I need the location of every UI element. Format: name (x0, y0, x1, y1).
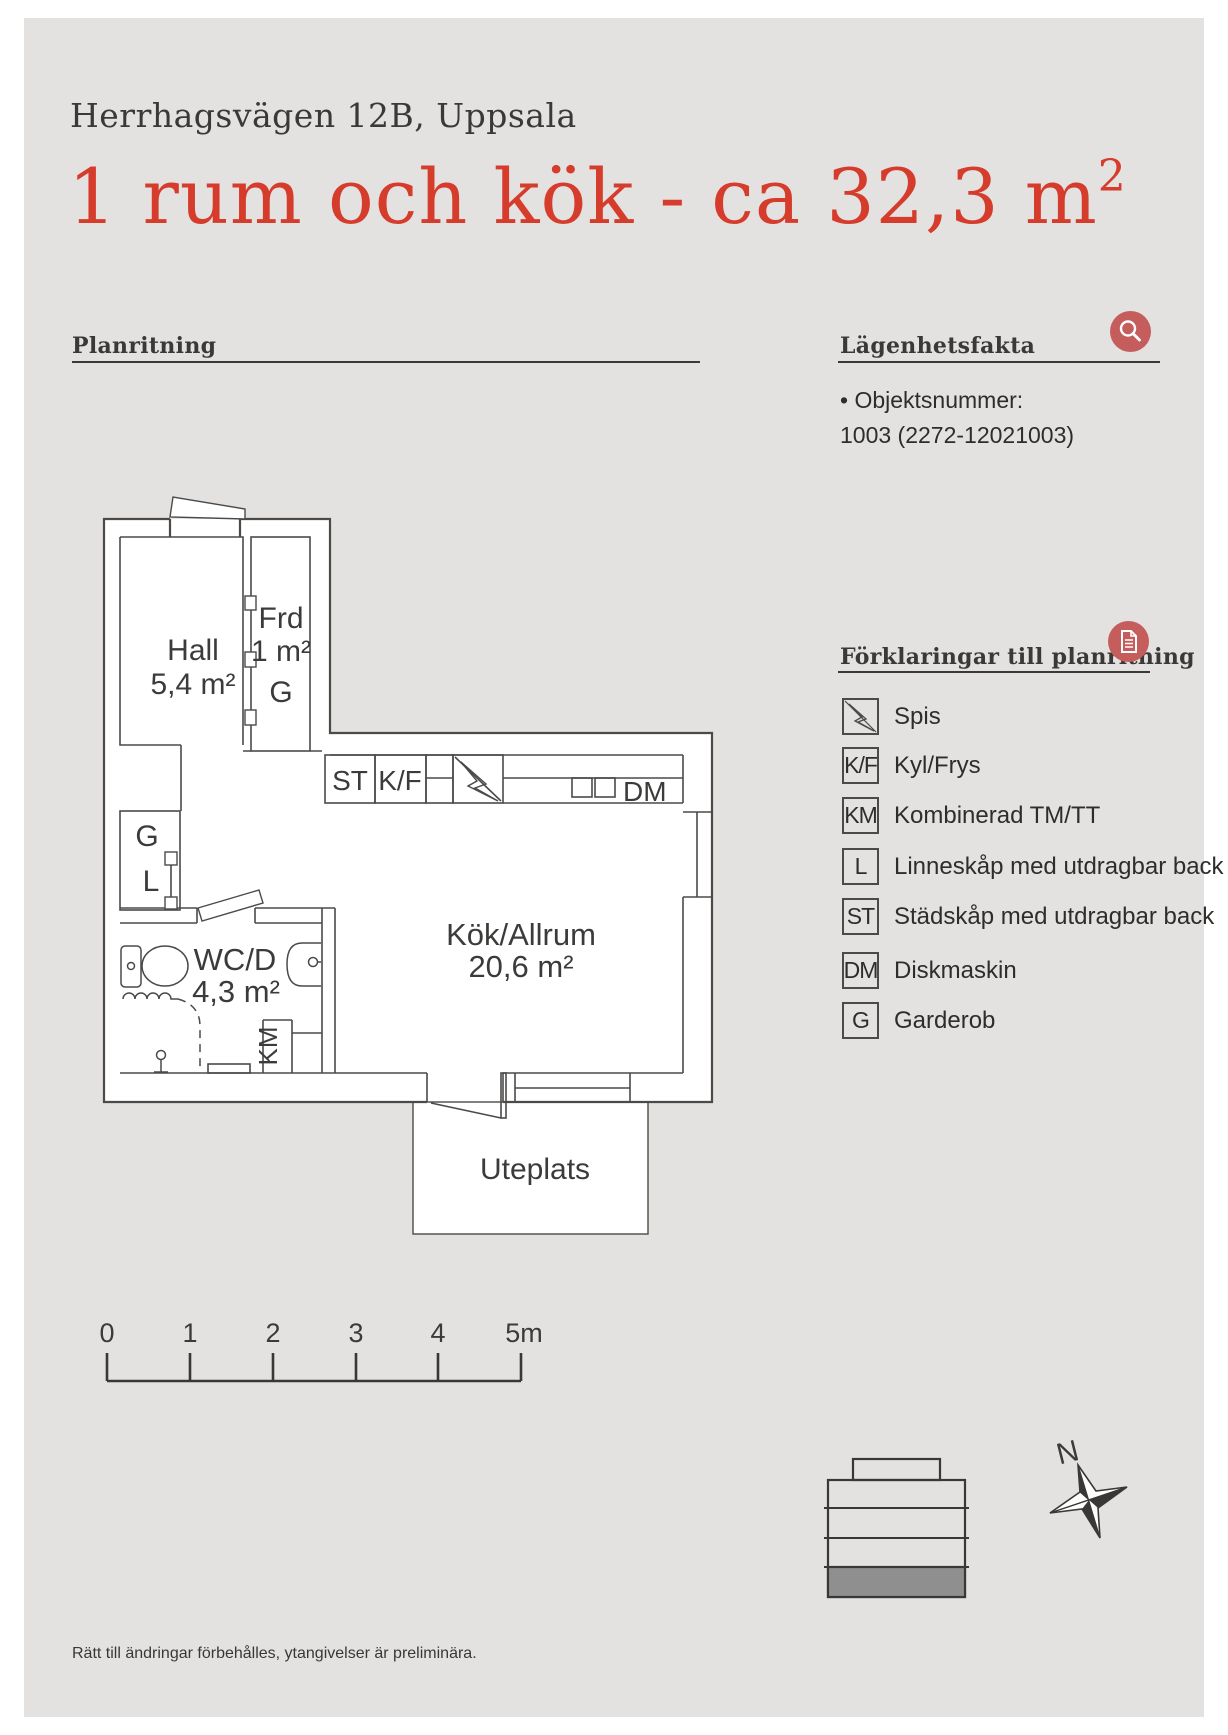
scale-tick-label: 2 (265, 1318, 280, 1348)
closet-l-label: L (143, 865, 160, 898)
room-label-wc: WC/D (194, 942, 277, 977)
closet-g-label: G (135, 820, 158, 853)
scale-tick-label: 0 (99, 1318, 114, 1348)
room-area-hall: 5,4 m² (150, 668, 235, 701)
room-label-uteplats: Uteplats (480, 1153, 590, 1186)
fixture-label-st: ST (332, 765, 368, 796)
scale-tick-label: 4 (430, 1318, 445, 1348)
room-label-kok-allrum: Kök/Allrum (446, 917, 596, 952)
floor-plan-drawing: Hall 5,4 m² Frd 1 m² G G L WC/D 4,3 m² K… (0, 0, 1228, 1735)
building-floor-indicator-icon (824, 1459, 969, 1597)
room-label-frd: Frd (259, 602, 304, 635)
fixture-label-km: KM (253, 1027, 283, 1066)
scale-bar: 0 1 2 3 4 5m (99, 1318, 542, 1381)
scale-tick-label: 5m (505, 1318, 543, 1348)
scale-tick-label: 1 (182, 1318, 197, 1348)
room-area-wc: 4,3 m² (192, 974, 280, 1009)
frd-garderob-label: G (269, 676, 292, 709)
room-area-kok-allrum: 20,6 m² (468, 949, 573, 984)
scale-tick-label: 3 (348, 1318, 363, 1348)
room-area-frd: 1 m² (251, 635, 311, 668)
footer-disclaimer: Rätt till ändringar förbehålles, ytangiv… (72, 1645, 477, 1663)
compass-north-label: N (1053, 1434, 1082, 1471)
room-label-hall: Hall (167, 634, 219, 667)
fixture-label-dm: DM (623, 776, 667, 807)
fixture-label-kf: K/F (378, 765, 422, 796)
compass-icon: N (1050, 1434, 1127, 1538)
